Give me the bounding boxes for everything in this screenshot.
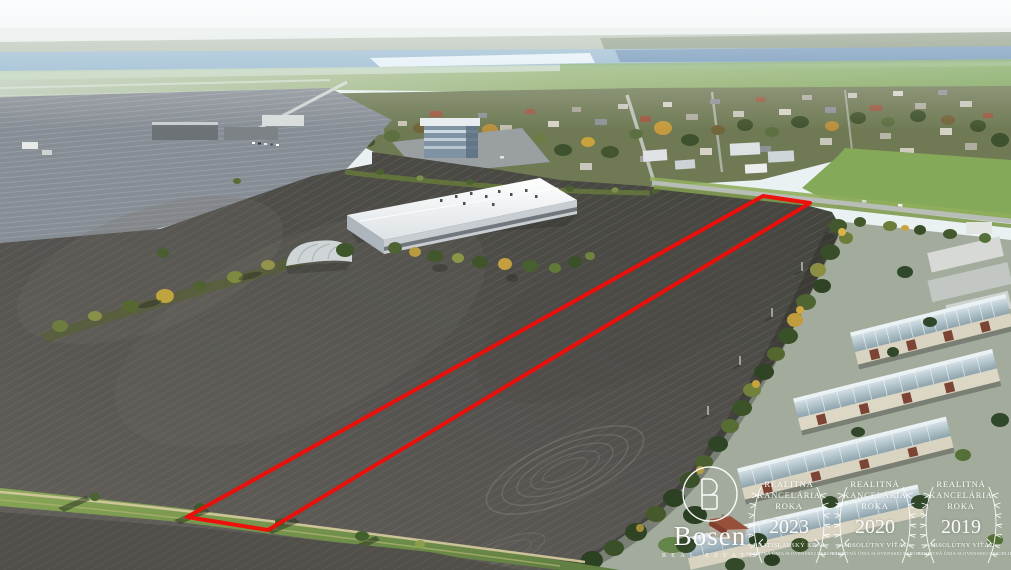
award-badge-2019: REALITNÁ KANCELÁRIA ROKA 2019 ABSOLÚTNY …: [918, 479, 1004, 556]
award-badge-2023: REALITNÁ KANCELÁRIA ROKA 2023 BRATISLAVS…: [746, 479, 832, 556]
award-badges: REALITNÁ KANCELÁRIA ROKA 2023 BRATISLAVS…: [746, 479, 1004, 556]
aerial-photo: Bosen REAL ESTATE REALITNÁ KANCELÁRIA: [0, 0, 1011, 570]
bosen-monogram-icon: [679, 465, 741, 527]
award-badge-2020: REALITNÁ KANCELÁRIA ROKA 2020 ABSOLÚTNY …: [832, 479, 918, 556]
award-fine-print: REALITNÁ ÚNIA SLOVENSKEJ REPUBLIKY: [918, 551, 1004, 556]
award-fine-print: REALITNÁ ÚNIA SLOVENSKEJ REPUBLIKY: [746, 551, 832, 556]
watermark: Bosen REAL ESTATE REALITNÁ KANCELÁRIA: [0, 0, 1011, 570]
award-fine-print: REALITNÁ ÚNIA SLOVENSKEJ REPUBLIKY: [832, 551, 918, 556]
